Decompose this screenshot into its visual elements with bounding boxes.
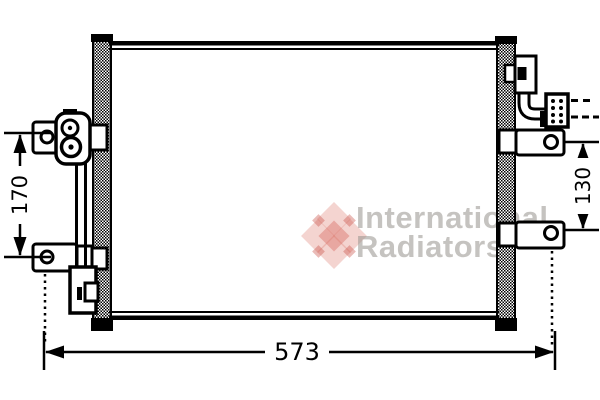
arrowhead-right [535,346,554,359]
bracket-assembly-top-right [499,130,564,155]
diagram-canvas: International Radiators [0,0,600,400]
clamp-slot [77,287,82,300]
dash [593,116,599,119]
thread-dot [559,113,563,117]
mounting-hole [545,227,558,240]
thread-dot [551,99,555,103]
arrowhead-left [45,346,64,359]
dash [583,99,590,102]
dash [582,116,589,119]
dimension-width-label: 573 [274,338,320,366]
bracket-assembly-bottom-right [499,222,564,248]
thread-dot [559,106,563,110]
thread-dot [559,120,563,124]
dash [571,99,578,102]
dash [571,116,578,119]
clamp-notch [85,283,98,301]
upper-tab-slot [518,67,527,80]
bottom-edge-inner-line [109,311,499,313]
pipe-line [84,163,87,269]
dashed-leader-lines [571,99,599,119]
dimension-width: 573 [44,331,555,370]
port-upper-center [68,126,72,130]
port-lower-center [68,144,73,149]
pipe-line [75,163,78,269]
core-bottom-edge [109,311,499,320]
threaded-fitting-block [546,94,568,127]
core-top-edge [109,41,499,50]
mounting-hole [545,136,558,149]
bottom-edge-outer-line [109,316,499,321]
dimension-height-left-label: 170 [8,175,32,215]
condenser-line-drawing: 573 170 130 [0,0,600,400]
thread-dot [559,99,563,103]
thread-dot [551,113,555,117]
left-plate-top-cap [91,34,113,42]
arrowhead-down [14,237,27,256]
dimension-height-right: 130 [565,142,599,230]
top-edge-inner-line [109,48,499,50]
thread-dot [551,106,555,110]
top-edge-outer-line [109,41,499,46]
arrowhead-up [14,134,27,153]
thread-dot [551,120,555,124]
pipe-clamp-bottom-left [70,267,98,313]
dimension-height-right-label: 130 [571,167,595,205]
